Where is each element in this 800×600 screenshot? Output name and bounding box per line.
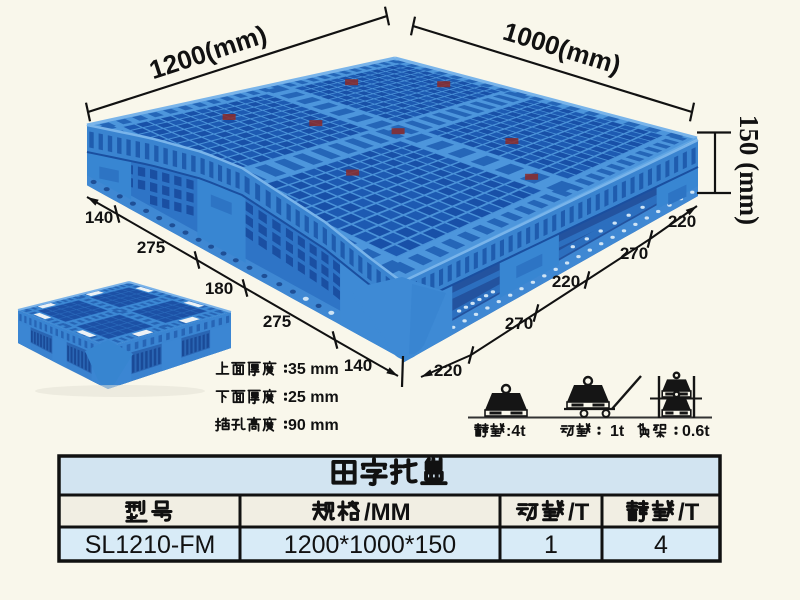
- svg-text:270: 270: [505, 314, 533, 333]
- svg-text:275: 275: [137, 238, 165, 257]
- svg-text:1200*1000*150: 1200*1000*150: [284, 531, 456, 559]
- svg-text:SL1210-FM: SL1210-FM: [85, 531, 216, 559]
- svg-text:220: 220: [552, 272, 580, 291]
- svg-text:25 mm: 25 mm: [288, 389, 339, 406]
- svg-text:180: 180: [205, 279, 233, 298]
- svg-text:90 mm: 90 mm: [288, 417, 339, 434]
- svg-text:275: 275: [263, 312, 291, 331]
- svg-text:140: 140: [85, 208, 113, 227]
- svg-text:/T: /T: [568, 499, 590, 526]
- svg-text:4: 4: [654, 531, 668, 559]
- svg-text:1: 1: [544, 531, 558, 559]
- svg-text:35 mm: 35 mm: [288, 361, 339, 378]
- svg-text:220: 220: [434, 361, 462, 380]
- svg-text:1t: 1t: [610, 423, 625, 440]
- svg-text:0.6t: 0.6t: [682, 423, 710, 440]
- svg-text:270: 270: [620, 244, 648, 263]
- svg-text:220: 220: [668, 212, 696, 231]
- svg-text:150 (mm): 150 (mm): [734, 115, 764, 225]
- svg-text:/MM: /MM: [364, 499, 411, 526]
- svg-text:/T: /T: [678, 499, 700, 526]
- svg-text::4t: :4t: [506, 423, 526, 440]
- svg-text:140: 140: [344, 356, 372, 375]
